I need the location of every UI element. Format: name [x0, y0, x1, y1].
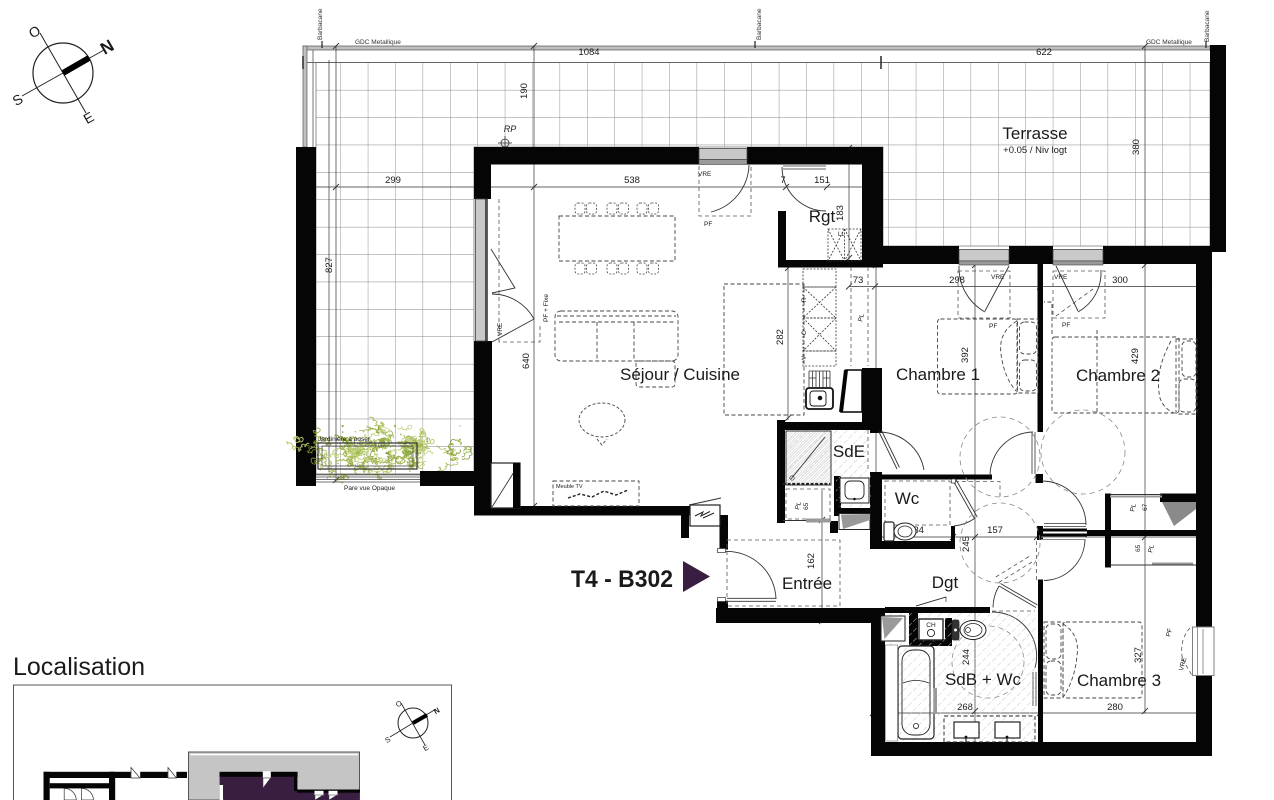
svg-text:827: 827 [324, 257, 335, 273]
svg-text:190: 190 [519, 83, 530, 99]
svg-text:Barbacane: Barbacane [317, 8, 324, 40]
svg-text:VRE: VRE [1054, 274, 1068, 281]
svg-text:65: 65 [1135, 544, 1142, 552]
svg-text:V: V [802, 356, 808, 360]
svg-text:VRE: VRE [698, 171, 712, 178]
svg-text:299: 299 [385, 175, 401, 186]
svg-text:380: 380 [1131, 139, 1142, 155]
svg-text:PF: PF [704, 221, 712, 228]
svg-text:LL: LL [838, 232, 845, 238]
svg-text:Meuble TV: Meuble TV [556, 484, 583, 490]
svg-text:65: 65 [803, 502, 810, 510]
svg-text:RP: RP [504, 124, 517, 134]
svg-text:PF: PF [989, 323, 997, 330]
svg-text:Chambre 2: Chambre 2 [1076, 366, 1160, 385]
svg-text:Rgt: Rgt [809, 207, 836, 226]
svg-text:VRE: VRE [991, 274, 1005, 281]
svg-text:Pare vue Opaque: Pare vue Opaque [344, 485, 395, 492]
svg-text:300: 300 [1112, 275, 1128, 286]
svg-text:R: R [802, 297, 808, 302]
svg-text:Chambre 3: Chambre 3 [1077, 671, 1161, 690]
svg-text:Terrasse: Terrasse [1002, 124, 1067, 143]
svg-text:C: C [802, 330, 808, 335]
svg-text:PF: PF [1062, 322, 1070, 329]
svg-text:+0.05 / Niv logt: +0.05 / Niv logt [1003, 145, 1067, 156]
svg-text:67: 67 [1142, 503, 1149, 511]
svg-text:VRE: VRE [497, 322, 504, 336]
svg-text:245: 245 [961, 536, 972, 552]
svg-text:Chambre 1: Chambre 1 [896, 365, 980, 384]
svg-text:Entrée: Entrée [782, 574, 832, 593]
svg-text:SdE: SdE [833, 442, 865, 461]
svg-text:Localisation: Localisation [13, 653, 145, 681]
svg-text:SdB + Wc: SdB + Wc [945, 670, 1022, 689]
svg-text:151: 151 [814, 175, 830, 186]
svg-text:392: 392 [960, 347, 971, 363]
svg-text:157: 157 [987, 525, 1003, 536]
svg-text:282: 282 [775, 329, 786, 345]
svg-text:Wc: Wc [895, 489, 920, 508]
svg-text:298: 298 [949, 275, 965, 286]
svg-text:Barbacane: Barbacane [1204, 10, 1211, 42]
svg-text:PF + Fixe: PF + Fixe [543, 294, 550, 322]
svg-text:GDC Metallique: GDC Metallique [1146, 39, 1192, 46]
svg-text:538: 538 [624, 175, 640, 186]
svg-text:162: 162 [806, 553, 817, 569]
svg-text:73: 73 [853, 275, 864, 286]
svg-text:280: 280 [1107, 702, 1123, 713]
svg-text:622: 622 [1036, 47, 1052, 58]
svg-text:T4 - B302: T4 - B302 [571, 566, 673, 593]
svg-text:Séjour / Cuisine: Séjour / Cuisine [620, 365, 740, 384]
svg-text:1084: 1084 [578, 47, 599, 58]
svg-text:429: 429 [1130, 348, 1141, 364]
svg-text:Dgt: Dgt [932, 573, 959, 592]
svg-text:183: 183 [835, 205, 846, 221]
svg-text:GDC Metallique: GDC Metallique [355, 39, 401, 46]
svg-text:Barbacane: Barbacane [756, 8, 763, 40]
svg-text:CH: CH [926, 622, 936, 629]
svg-text:Jardinière à poser: Jardinière à poser [318, 436, 371, 443]
svg-text:640: 640 [521, 353, 532, 369]
